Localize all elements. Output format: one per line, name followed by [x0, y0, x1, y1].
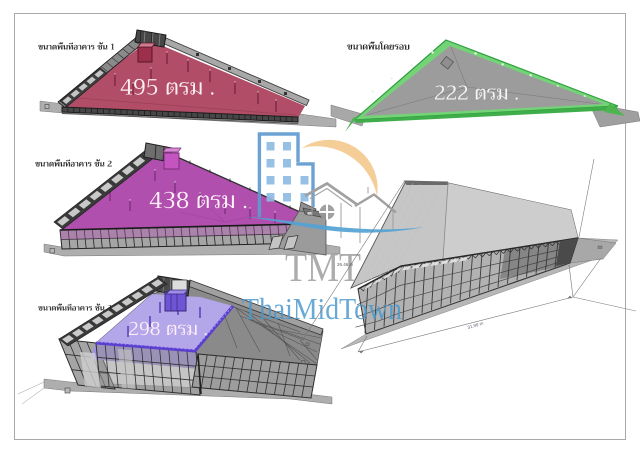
svg-text:26.46 m: 26.46 m [337, 262, 354, 267]
svg-text:31.99 m: 31.99 m [467, 321, 484, 330]
svg-text:ThaiMidTown: ThaiMidTown [242, 291, 402, 326]
